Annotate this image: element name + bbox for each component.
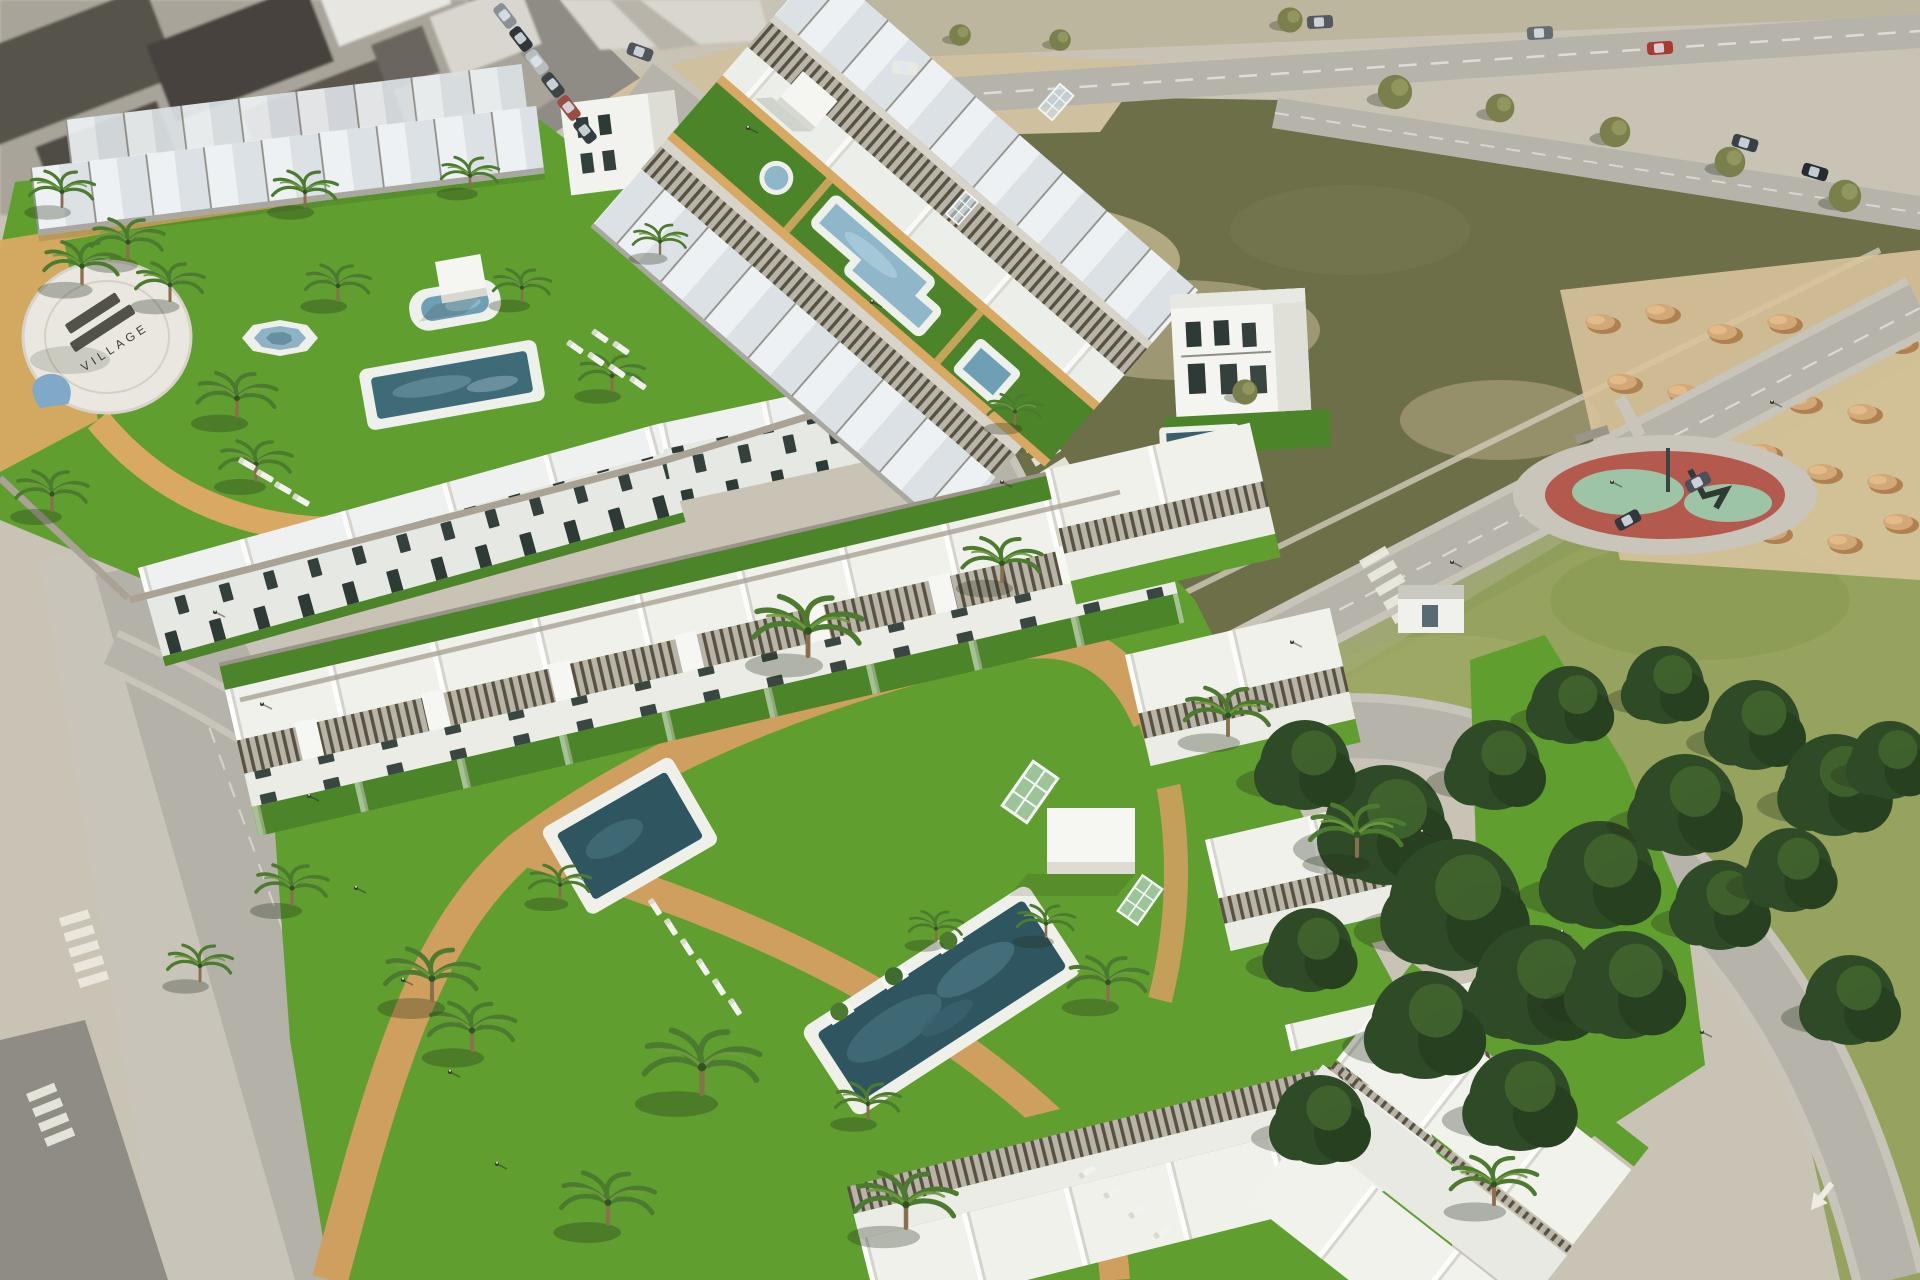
- scrub-patch: [1230, 185, 1470, 275]
- scrub-patch: [1400, 380, 1600, 460]
- car: [1647, 41, 1674, 56]
- aerial-render: VILLAGE: [0, 0, 1920, 1280]
- car: [1527, 26, 1554, 40]
- car: [891, 60, 918, 76]
- octagon-fountain: [242, 320, 318, 356]
- car: [1307, 15, 1334, 29]
- utility-hut: [1398, 585, 1464, 633]
- scene-canvas: VILLAGE: [0, 0, 1920, 1280]
